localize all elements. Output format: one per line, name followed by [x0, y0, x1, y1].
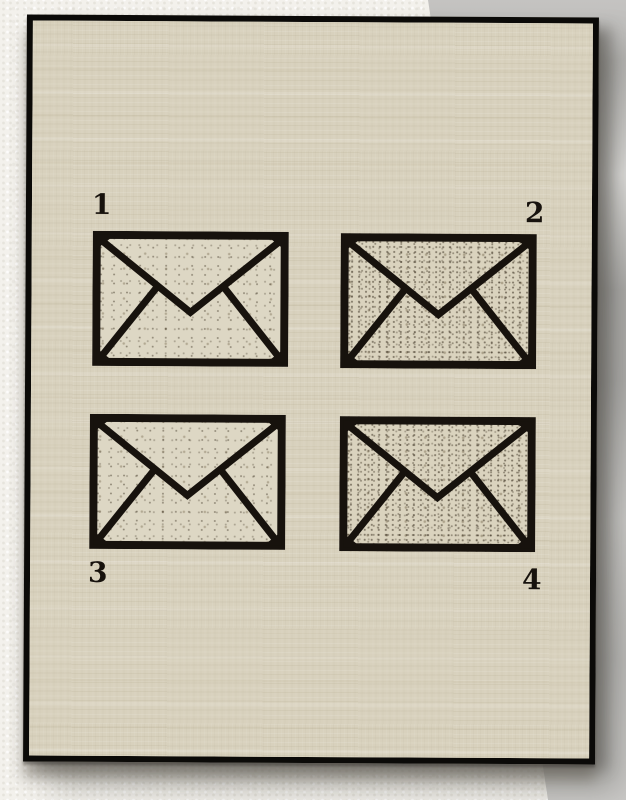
envelope-icon	[89, 414, 286, 550]
envelope-icon	[339, 416, 536, 552]
envelope-4	[339, 416, 536, 552]
envelope-label-4: 4	[522, 566, 542, 594]
envelope-label-1: 1	[92, 191, 112, 219]
envelope-1	[92, 231, 289, 367]
envelope-3	[89, 414, 286, 550]
envelope-icon	[340, 233, 537, 369]
print-canvas: 1 2 3 4	[29, 21, 593, 759]
envelope-icon	[92, 231, 289, 367]
envelope-label-3: 3	[88, 559, 108, 587]
picture-frame: 1 2 3 4	[23, 15, 599, 765]
envelope-label-2: 2	[525, 199, 545, 227]
envelope-2	[340, 233, 537, 369]
